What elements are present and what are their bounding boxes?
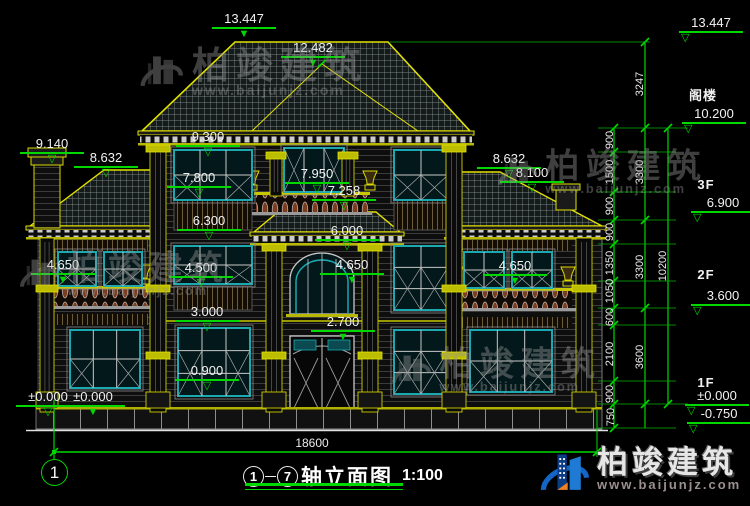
- elevation-value: 6.000: [315, 224, 379, 238]
- title-underline: [245, 483, 403, 486]
- marker-triangle-icon: ▽: [312, 201, 376, 211]
- marker-triangle-icon: ▽: [691, 213, 750, 223]
- company-logo-name: 柏竣建筑: [597, 446, 741, 479]
- elevation-value: 3.600: [691, 289, 750, 303]
- marker-triangle-icon: ▽: [169, 278, 233, 288]
- title-underline: [245, 489, 403, 491]
- drawing-title: 1 7 轴立面图 1:100: [243, 461, 443, 491]
- elevation-marker: 6.000▽: [315, 224, 379, 251]
- elevation-value: 8.100: [500, 166, 564, 180]
- watermark-url: www.baijunjz.com: [439, 379, 601, 394]
- elevation-value: 6.900: [691, 196, 750, 210]
- company-logo-url: www.baijunjz.com: [597, 477, 741, 492]
- marker-triangle-icon: ▽: [682, 124, 746, 134]
- chain-dimension-label: 1350: [604, 251, 616, 275]
- elevation-marker: 4.650▼: [31, 258, 95, 285]
- cad-canvas: 13.447▼12.482▼9.140▽8.632▽9.300▽7.800▽7.…: [0, 0, 750, 506]
- marker-triangle-icon: ▽: [177, 231, 241, 241]
- marker-triangle-icon: ▽: [74, 168, 138, 178]
- elevation-value: 12.482: [281, 41, 345, 55]
- elevation-marker: 3.000▽: [175, 305, 239, 332]
- axis-bubble-1: 1: [41, 459, 68, 486]
- marker-triangle-icon: ▽: [691, 306, 750, 316]
- chain-dimension-label: 3300: [634, 160, 646, 184]
- elevation-marker: 10.200▽: [682, 107, 746, 134]
- elevation-marker: 2.700▼: [311, 315, 375, 342]
- floor-label: 1F: [676, 375, 736, 390]
- elevation-marker: 7.258▽: [312, 184, 376, 211]
- elevation-value: 9.300: [176, 130, 240, 144]
- elevation-value: 8.632: [74, 151, 138, 165]
- elevation-value: 7.950: [285, 167, 349, 181]
- company-logo: 柏竣建筑 www.baijunjz.com: [536, 446, 741, 502]
- elevation-marker: 13.447▼: [212, 12, 276, 39]
- marker-triangle-icon: ▽: [500, 183, 564, 193]
- elevation-marker: 7.800▽: [167, 171, 231, 198]
- chain-dimension-label: 3247: [634, 72, 646, 96]
- chain-dimension-label: 1050: [604, 279, 616, 303]
- axis-bubble-label: 1: [50, 463, 59, 483]
- elevation-marker: -0.750▽: [687, 407, 750, 434]
- elevation-marker: 3.600▽: [691, 289, 750, 316]
- chain-dimension-label: 3300: [634, 255, 646, 279]
- elevation-value: 9.140: [20, 137, 84, 151]
- watermark-brand: 柏竣建筑: [439, 346, 601, 383]
- elevation-value: 4.650: [320, 258, 384, 272]
- elevation-marker: 4.500▽: [169, 261, 233, 288]
- elevation-value: 4.650: [483, 259, 547, 273]
- marker-triangle-icon: ▽: [175, 381, 239, 391]
- elevation-value: 10.200: [682, 107, 746, 121]
- drawing-title-text: 轴立面图: [301, 461, 393, 491]
- elevation-value: 13.447: [212, 12, 276, 26]
- elevation-value: -0.750: [687, 407, 750, 421]
- marker-triangle-icon: ▼: [212, 29, 276, 39]
- elevation-value: 2.700: [311, 315, 375, 329]
- elevation-value: 4.650: [31, 258, 95, 272]
- chain-dimension-label: 10200: [657, 251, 669, 282]
- floor-label: 3F: [676, 177, 736, 192]
- marker-triangle-icon: ▽: [176, 147, 240, 157]
- elevation-value: 8.632: [477, 152, 541, 166]
- elevation-marker: 8.100▽: [500, 166, 564, 193]
- elevation-value: 6.300: [177, 214, 241, 228]
- marker-triangle-icon: ▽: [687, 424, 750, 434]
- elevation-value: 4.500: [169, 261, 233, 275]
- elevation-marker: 8.632▽: [74, 151, 138, 178]
- elevation-value: 0.900: [175, 364, 239, 378]
- elevation-marker: 9.300▽: [176, 130, 240, 157]
- chain-dimension-label: 750: [605, 408, 617, 426]
- elevation-marker: 13.447▽: [679, 16, 743, 43]
- elevation-value: 3.000: [175, 305, 239, 319]
- axis-dash: [265, 476, 276, 477]
- elevation-marker: 0.900▽: [175, 364, 239, 391]
- marker-triangle-icon: ▼: [483, 276, 547, 286]
- chain-dimension-label: 2100: [604, 342, 616, 366]
- elevation-marker: 4.650▼: [320, 258, 384, 285]
- elevation-marker: ±0.000▼: [61, 390, 125, 417]
- drawing-scale: 1:100: [402, 467, 443, 485]
- marker-triangle-icon: ▽: [679, 33, 743, 43]
- chain-dimension-label: 900: [604, 385, 616, 403]
- floor-label: 2F: [676, 267, 736, 282]
- elevation-marker: 12.482▼: [281, 41, 345, 68]
- chain-dimension-label: 3600: [634, 345, 646, 369]
- elevation-marker: 6.900▽: [691, 196, 750, 223]
- marker-triangle-icon: ▼: [61, 407, 125, 417]
- elevation-value: ±0.000: [61, 390, 125, 404]
- marker-triangle-icon: ▽: [175, 322, 239, 332]
- marker-triangle-icon: ▼: [31, 275, 95, 285]
- elevation-marker: 4.650▼: [483, 259, 547, 286]
- watermark: 柏竣建筑www.baijunjz.com: [386, 346, 601, 394]
- elevation-value: 13.447: [679, 16, 743, 30]
- chain-dimension-label: 900: [604, 223, 616, 241]
- marker-triangle-icon: ▼: [320, 275, 384, 285]
- chain-dimension-label: 900: [604, 197, 616, 215]
- watermark-url: www.baijunjz.com: [192, 82, 368, 98]
- elevation-value: ±0.000: [685, 389, 749, 403]
- annotation-overlay: 13.447▼12.482▼9.140▽8.632▽9.300▽7.800▽7.…: [0, 0, 750, 506]
- floor-label: 阁楼: [673, 85, 733, 104]
- company-logo-icon: [536, 446, 592, 502]
- chain-dimension-label: 600: [604, 308, 616, 326]
- watermark-logo-icon: [386, 346, 434, 394]
- watermark-logo-icon: [134, 46, 186, 98]
- marker-triangle-icon: ▼: [281, 58, 345, 68]
- overall-dimension: 18600: [282, 436, 342, 450]
- marker-triangle-icon: ▽: [167, 188, 231, 198]
- marker-triangle-icon: ▽: [315, 241, 379, 251]
- elevation-value: 7.800: [167, 171, 231, 185]
- elevation-value: 7.258: [312, 184, 376, 198]
- chain-dimension-label: 1500: [604, 160, 616, 184]
- chain-dimension-label: 900: [604, 131, 616, 149]
- elevation-marker: 6.300▽: [177, 214, 241, 241]
- marker-triangle-icon: ▼: [311, 332, 375, 342]
